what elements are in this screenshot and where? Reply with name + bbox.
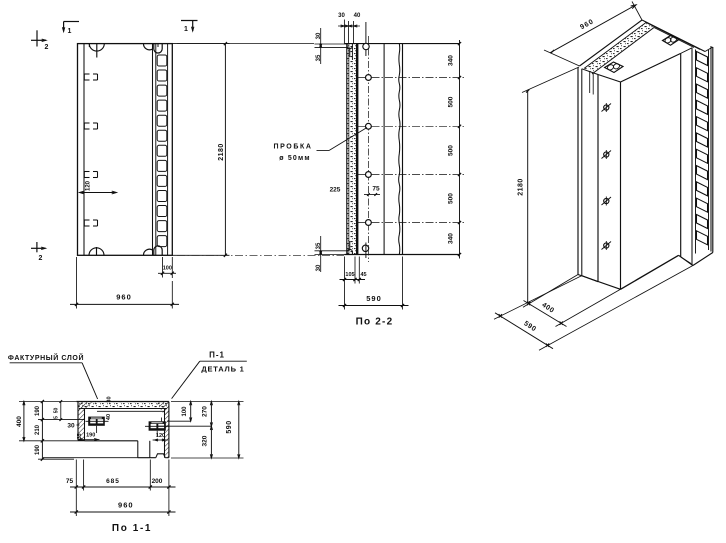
svg-text:105: 105 (345, 272, 354, 278)
svg-text:30: 30 (338, 13, 345, 19)
svg-text:400: 400 (16, 416, 23, 427)
svg-text:960: 960 (118, 501, 134, 510)
svg-text:685: 685 (106, 478, 120, 485)
svg-text:ФАКТУРНЫЙ СЛОЙ: ФАКТУРНЫЙ СЛОЙ (8, 353, 84, 362)
svg-text:500: 500 (448, 193, 455, 204)
svg-text:2180: 2180 (218, 143, 225, 161)
svg-text:190: 190 (35, 444, 41, 455)
svg-text:40: 40 (354, 13, 361, 19)
svg-text:590: 590 (366, 294, 382, 303)
svg-text:40: 40 (106, 414, 112, 420)
svg-text:120: 120 (156, 433, 165, 439)
svg-text:270: 270 (201, 406, 208, 417)
svg-text:590: 590 (226, 420, 233, 433)
svg-text:100: 100 (163, 266, 172, 272)
svg-text:2: 2 (39, 255, 43, 262)
svg-text:30: 30 (67, 423, 75, 430)
svg-text:340: 340 (448, 55, 455, 66)
svg-text:50: 50 (54, 408, 60, 414)
svg-text:2: 2 (45, 44, 49, 51)
svg-text:500: 500 (448, 145, 455, 156)
svg-text:30: 30 (107, 396, 113, 402)
svg-text:По 1-1: По 1-1 (112, 523, 152, 534)
svg-text:По 2-2: По 2-2 (356, 317, 394, 328)
svg-text:1: 1 (184, 26, 188, 33)
svg-text:5: 5 (54, 416, 60, 419)
svg-text:210: 210 (35, 424, 41, 435)
svg-text:75: 75 (66, 478, 74, 485)
svg-text:190: 190 (86, 433, 95, 439)
svg-text:75: 75 (372, 186, 380, 193)
svg-text:200: 200 (152, 478, 163, 485)
svg-text:340: 340 (448, 233, 455, 244)
svg-text:225: 225 (330, 187, 341, 194)
svg-text:ДЕТАЛЬ 1: ДЕТАЛЬ 1 (201, 365, 244, 374)
svg-text:П-1: П-1 (209, 351, 225, 360)
svg-text:120: 120 (86, 180, 92, 191)
svg-text:ø 50мм: ø 50мм (279, 155, 311, 162)
svg-text:190: 190 (35, 405, 41, 416)
svg-text:100: 100 (182, 406, 188, 417)
svg-text:320: 320 (201, 435, 208, 446)
svg-text:45: 45 (360, 272, 366, 278)
svg-text:2180: 2180 (518, 178, 525, 196)
svg-text:ПРОБКА: ПРОБКА (273, 144, 312, 151)
svg-text:500: 500 (448, 96, 455, 107)
svg-text:960: 960 (116, 293, 132, 302)
svg-text:1: 1 (68, 28, 72, 35)
